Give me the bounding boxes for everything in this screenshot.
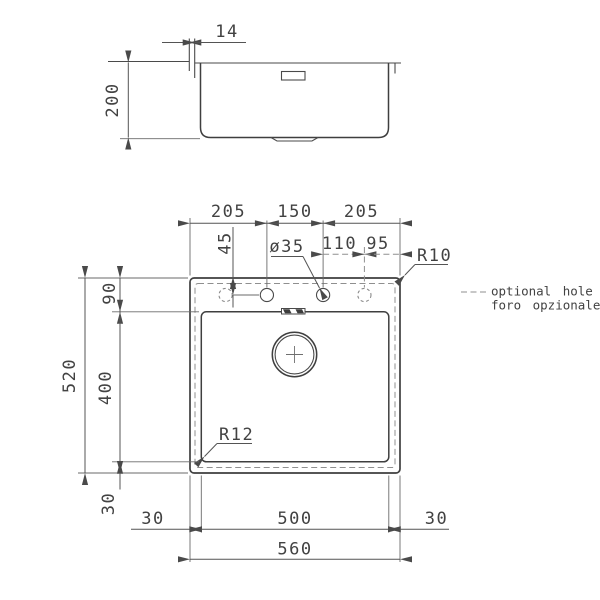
dim-label-205-left: 205	[211, 202, 246, 222]
dim-label-400: 400	[96, 370, 116, 405]
optional-hole-left	[219, 288, 232, 301]
faucet-hole-1	[260, 288, 273, 301]
dim-label-r12: R12	[219, 425, 254, 445]
dim-label-14: 14	[215, 22, 238, 42]
leader-line	[205, 444, 218, 457]
legend: optional hole foro opzionale	[461, 284, 600, 313]
drain	[272, 332, 316, 376]
dim-bottom-rows: 30 500 30 560	[131, 476, 449, 563]
dim-label-520: 520	[60, 358, 80, 393]
dim-label-560: 560	[277, 540, 312, 560]
dim-label-45: 45	[216, 231, 236, 254]
dim-label-90: 90	[100, 281, 120, 304]
overflow-profile	[282, 72, 306, 81]
dim-label-205-right: 205	[344, 202, 379, 222]
bowl-radius-callout: R12	[205, 425, 255, 457]
dim-label-110: 110	[322, 234, 357, 254]
dim-label-500: 500	[277, 509, 312, 529]
overflow-slot	[282, 309, 306, 315]
dim-edge-width: 14	[162, 22, 246, 43]
hole-diameter-callout: ø35	[269, 237, 319, 288]
dim-label-95: 95	[366, 234, 389, 254]
optional-hole-right	[358, 288, 371, 301]
corner-radius-callout: R10	[405, 246, 452, 275]
dim-label-dia35: ø35	[269, 237, 304, 257]
faucet-hole-2	[317, 288, 330, 301]
dim-label-150: 150	[277, 202, 312, 222]
plan-view: 205 150 205 45 ø35 110 95 R10	[60, 202, 452, 562]
dim-bowl-depth: 200	[103, 63, 200, 139]
dim-label-200: 200	[103, 82, 123, 117]
dim-label-30-vertical: 30	[99, 492, 119, 515]
dim-optional-hole: 110 95	[322, 234, 400, 288]
dim-label-30-left: 30	[141, 509, 164, 529]
dim-hole-offset: 45	[216, 227, 260, 308]
leader-line	[405, 265, 415, 276]
dim-left-column: 520 90 400 30	[60, 278, 199, 515]
bowl-profile	[201, 63, 389, 138]
legend-line-1: optional hole	[491, 284, 593, 299]
dim-label-30-right: 30	[425, 509, 448, 529]
legend-line-2: foro opzionale	[491, 298, 600, 313]
sink-technical-drawing: 14 200	[0, 0, 600, 600]
dim-label-r10: R10	[417, 246, 452, 266]
side-view: 14 200	[103, 22, 401, 141]
